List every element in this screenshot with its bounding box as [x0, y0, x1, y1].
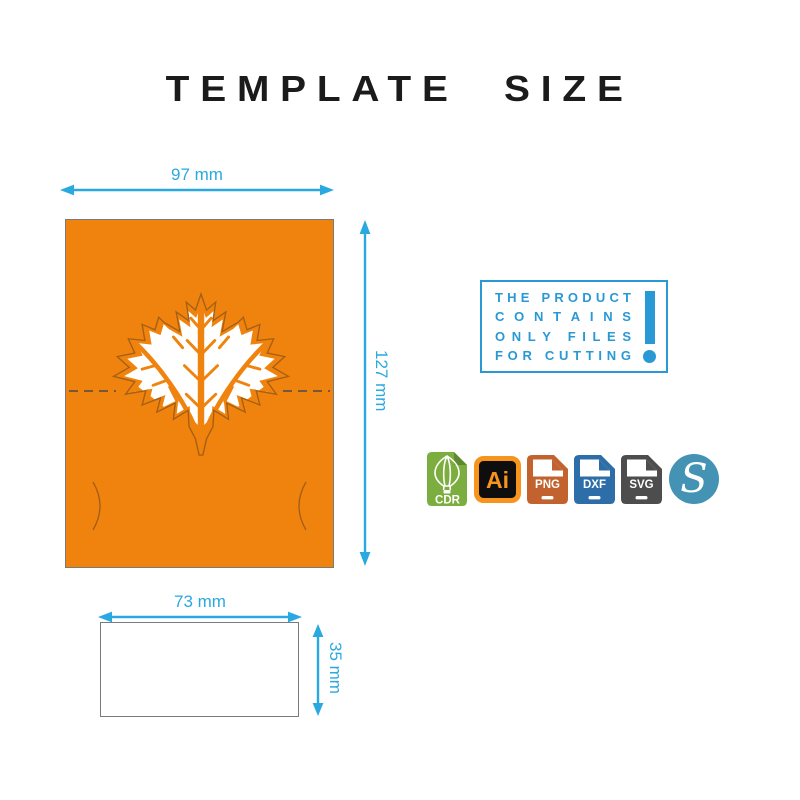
exclamation-dot	[643, 350, 656, 363]
exclamation-mark	[643, 289, 656, 364]
card-height-label: 127 mm	[371, 350, 391, 411]
card-height-arrow	[358, 220, 372, 566]
silhouette-label: S	[680, 456, 707, 502]
page-root: TEMPLATE SIZE 97 mm	[0, 0, 800, 800]
notice-line-3: ONLY FILES	[495, 328, 631, 345]
svg-label: SVG	[629, 479, 653, 491]
ai-file-icon: Ai	[474, 456, 521, 503]
dxf-file-icon: DXF	[574, 455, 615, 504]
insert-height-label: 35 mm	[325, 642, 345, 694]
file-format-icons: CDR Ai PNG DXF	[427, 452, 720, 506]
card-template	[65, 219, 334, 568]
silhouette-studio-icon: S	[668, 453, 720, 505]
exclamation-bar	[645, 291, 655, 344]
page-title-wrap: TEMPLATE SIZE	[0, 68, 800, 110]
ai-label: Ai	[486, 467, 509, 493]
insert-width-label: 73 mm	[98, 592, 302, 612]
notice-text: THE PRODUCT CONTAINS ONLY FILES FOR CUTT…	[495, 289, 643, 364]
notice-line-4: FOR CUTTING	[495, 347, 631, 364]
insert-height-arrow	[311, 624, 325, 716]
insert-card	[100, 622, 299, 717]
png-file-icon: PNG	[527, 455, 568, 504]
page-title: TEMPLATE SIZE	[166, 68, 634, 110]
cdr-file-icon: CDR	[427, 452, 468, 506]
png-label: PNG	[535, 479, 560, 491]
dxf-label: DXF	[583, 479, 606, 491]
leaf-cutout-graphic	[66, 220, 333, 567]
notice-box: THE PRODUCT CONTAINS ONLY FILES FOR CUTT…	[480, 280, 668, 373]
svg-file-icon: SVG	[621, 455, 662, 504]
card-width-label: 97 mm	[60, 165, 334, 185]
cdr-label: CDR	[435, 495, 461, 507]
notice-line-1: THE PRODUCT	[495, 289, 631, 306]
card-width-arrow	[60, 183, 334, 197]
notice-line-2: CONTAINS	[495, 308, 631, 325]
